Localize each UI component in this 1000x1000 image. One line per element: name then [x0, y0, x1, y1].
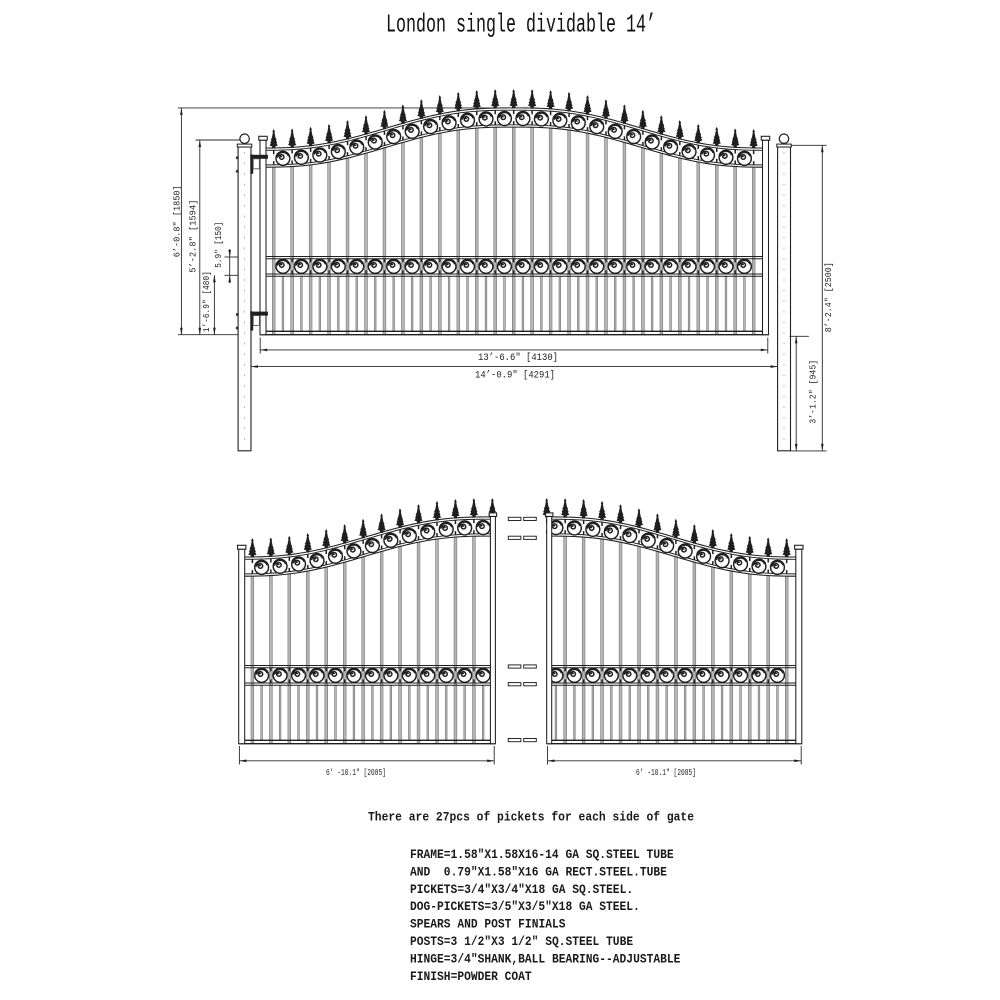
svg-text:14’-0.9" [4291]: 14’-0.9" [4291] — [475, 369, 555, 381]
svg-text:POSTS=3 1/2"X3 1/2" SQ.STEEL T: POSTS=3 1/2"X3 1/2" SQ.STEEL TUBE — [410, 935, 633, 949]
svg-text:13’-6.6" [4130]: 13’-6.6" [4130] — [478, 352, 558, 364]
svg-text:There are 27pcs of pickets for: There are 27pcs of pickets for each side… — [368, 811, 694, 825]
svg-text:FINISH=POWDER COAT: FINISH=POWDER COAT — [410, 970, 532, 984]
svg-text:HINGE=3/4"SHANK,BALL BEARING--: HINGE=3/4"SHANK,BALL BEARING--ADJUSTABLE — [410, 952, 681, 966]
svg-text:3’-1.2" [945]: 3’-1.2" [945] — [807, 360, 818, 424]
svg-text:London single dividable 14’: London single dividable 14’ — [386, 10, 656, 40]
svg-text:FRAME=1.58"X1.58X16-14 GA SQ.S: FRAME=1.58"X1.58X16-14 GA SQ.STEEL TUBE — [410, 848, 674, 862]
svg-text:PICKETS=3/4"X3/4"X18 GA SQ.STE: PICKETS=3/4"X3/4"X18 GA SQ.STEEL. — [410, 883, 633, 897]
svg-text:6’ -10.1" [2085]: 6’ -10.1" [2085] — [636, 767, 696, 778]
svg-text:DOG-PICKETS=3/5"X3/5"X18 GA ST: DOG-PICKETS=3/5"X3/5"X18 GA STEEL. — [410, 900, 640, 914]
svg-text:5’-2.8" [1594]: 5’-2.8" [1594] — [188, 200, 199, 273]
svg-text:AND 0.79"X1.58"X16 GA RECT.ST: AND 0.79"X1.58"X16 GA RECT.STEEL.TUBE — [410, 865, 667, 879]
svg-text:5.9" [150]: 5.9" [150] — [213, 222, 224, 268]
svg-text:SPEARS AND POST FINIALS: SPEARS AND POST FINIALS — [410, 918, 566, 932]
svg-text:8’-2.4" [2500]: 8’-2.4" [2500] — [823, 262, 834, 332]
svg-text:1’-6.9" [480]: 1’-6.9" [480] — [201, 271, 212, 332]
svg-text:6’ -10.1" [2085]: 6’ -10.1" [2085] — [326, 767, 386, 778]
svg-text:6’-0.8" [1850]: 6’-0.8" [1850] — [171, 185, 182, 257]
